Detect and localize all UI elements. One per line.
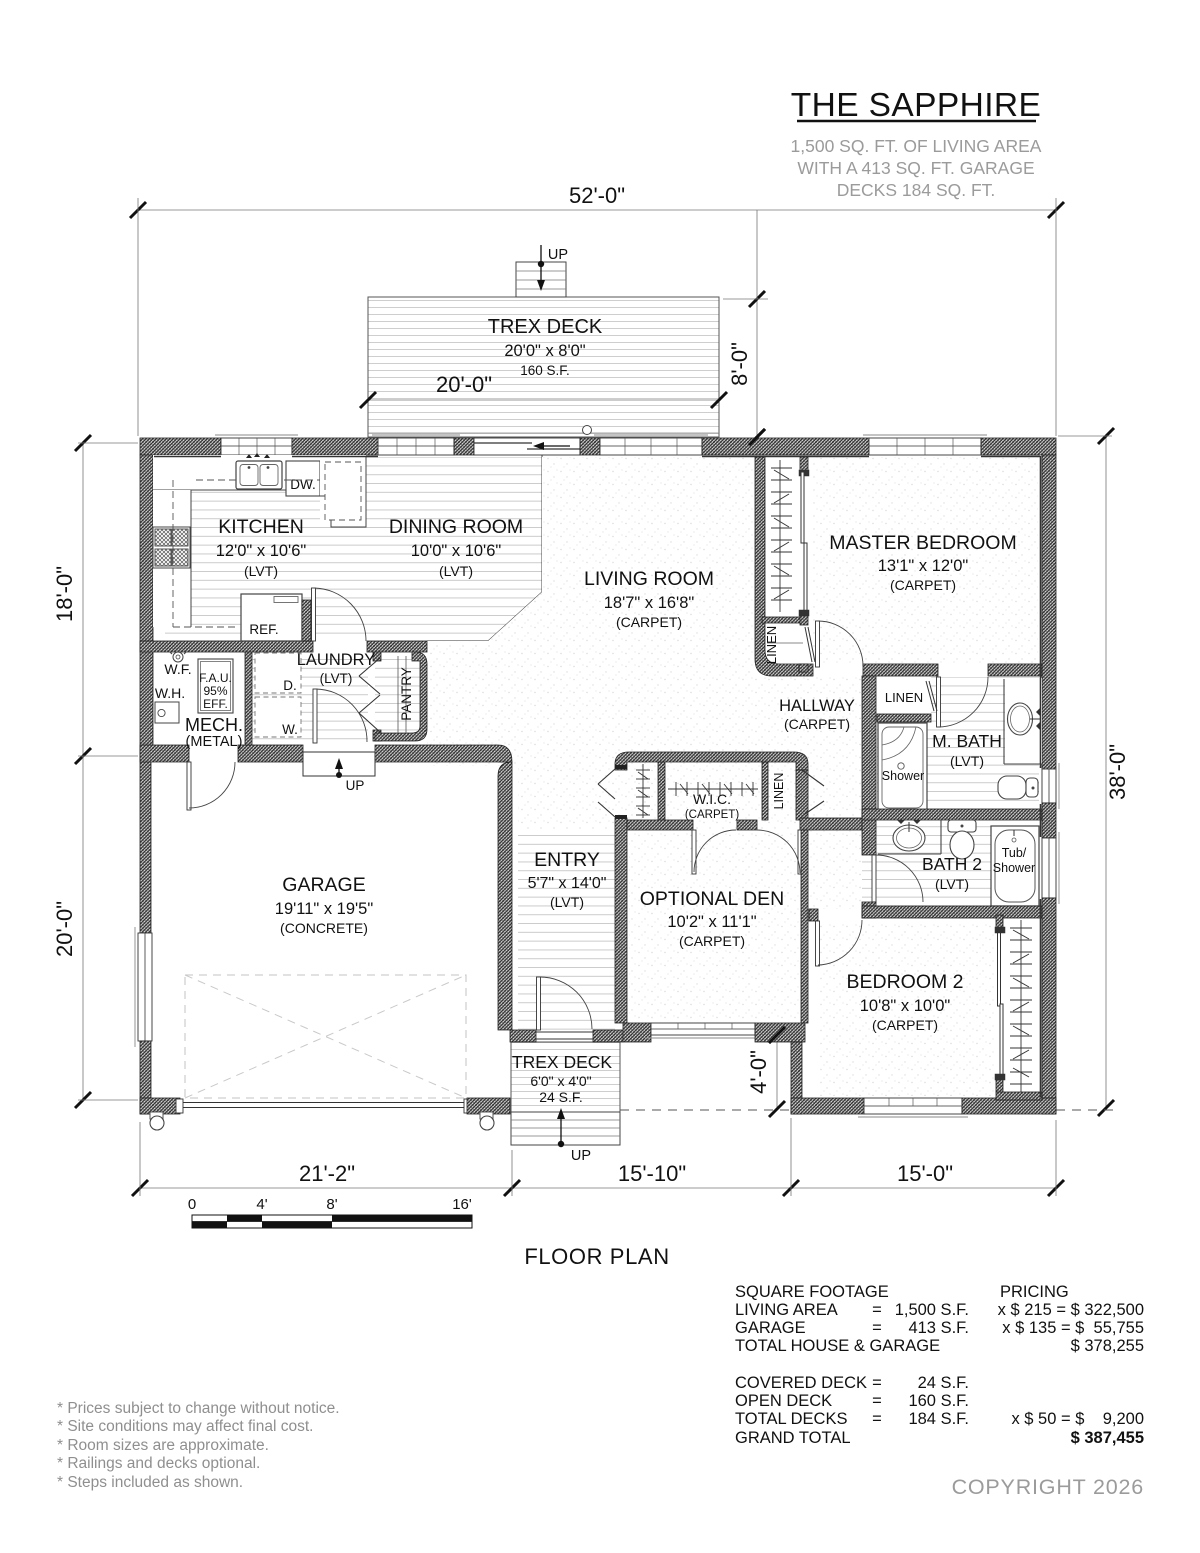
svg-text:8'-0": 8'-0"	[727, 342, 752, 386]
svg-text:10'0" x 10'6": 10'0" x 10'6"	[411, 542, 502, 560]
svg-text:LINEN: LINEN	[885, 690, 923, 705]
svg-text:SQUARE FOOTAGE: SQUARE FOOTAGE	[735, 1283, 889, 1301]
svg-text:20'-0": 20'-0"	[436, 372, 492, 397]
svg-text:OPTIONAL DEN: OPTIONAL DEN	[640, 888, 784, 910]
svg-text:15'-0": 15'-0"	[897, 1161, 953, 1186]
svg-text:W.H.: W.H.	[155, 685, 185, 701]
svg-text:ENTRY: ENTRY	[534, 849, 600, 871]
svg-text:WITH A 413 SQ. FT. GARAGE: WITH A 413 SQ. FT. GARAGE	[797, 158, 1034, 178]
svg-text:8': 8'	[326, 1196, 337, 1213]
svg-text:12'0" x 10'6": 12'0" x 10'6"	[216, 542, 307, 560]
svg-text:DW.: DW.	[290, 477, 316, 492]
svg-text:LAUNDRY: LAUNDRY	[297, 651, 376, 669]
svg-text:GARAGE: GARAGE	[735, 1319, 806, 1337]
svg-text:TOTAL DECKS: TOTAL DECKS	[735, 1410, 847, 1428]
svg-text:EFF.: EFF.	[203, 697, 228, 711]
svg-text:10'2" x 11'1": 10'2" x 11'1"	[667, 913, 756, 931]
svg-text:(LVT): (LVT)	[935, 876, 969, 892]
svg-text:10'8" x 10'0": 10'8" x 10'0"	[860, 997, 951, 1015]
svg-text:W.F.: W.F.	[164, 661, 191, 677]
svg-text:(CARPET): (CARPET)	[685, 809, 739, 821]
svg-text:HALLWAY: HALLWAY	[779, 697, 855, 715]
svg-text:$ 378,255: $ 378,255	[1071, 1337, 1144, 1355]
svg-text:1,500 SQ. FT. OF LIVING AREA: 1,500 SQ. FT. OF LIVING AREA	[791, 136, 1042, 156]
svg-text:=: =	[872, 1374, 882, 1392]
svg-text:* Site conditions may affect f: * Site conditions may affect final cost.	[57, 1418, 313, 1435]
svg-text:MECH.: MECH.	[185, 715, 243, 735]
svg-text:24 S.F.: 24 S.F.	[918, 1374, 969, 1392]
svg-text:18'-0": 18'-0"	[52, 566, 77, 622]
svg-text:MASTER BEDROOM: MASTER BEDROOM	[829, 532, 1016, 554]
svg-text:24 S.F.: 24 S.F.	[539, 1089, 583, 1105]
svg-text:DINING ROOM: DINING ROOM	[389, 516, 523, 538]
svg-text:18'7" x 16'8": 18'7" x 16'8"	[604, 594, 695, 612]
svg-text:(CARPET): (CARPET)	[616, 614, 682, 630]
svg-text:x $ 50 = $ 9,200: x $ 50 = $ 9,200	[1011, 1410, 1144, 1428]
svg-text:* Prices subject to change wit: * Prices subject to change without notic…	[57, 1400, 340, 1417]
svg-text:UP: UP	[571, 1148, 591, 1164]
svg-text:$ 387,455: $ 387,455	[1071, 1429, 1144, 1447]
svg-text:38'-0": 38'-0"	[1105, 744, 1130, 800]
svg-text:52'-0": 52'-0"	[569, 183, 625, 208]
svg-text:REF.: REF.	[249, 622, 278, 637]
svg-text:TREX DECK: TREX DECK	[512, 1052, 612, 1072]
svg-text:OPEN DECK: OPEN DECK	[735, 1392, 832, 1410]
svg-text:184 S.F.: 184 S.F.	[908, 1410, 969, 1428]
svg-text:F.A.U.: F.A.U.	[199, 671, 232, 685]
svg-text:(CARPET): (CARPET)	[784, 716, 850, 732]
svg-text:(CARPET): (CARPET)	[679, 933, 745, 949]
svg-text:(CARPET): (CARPET)	[890, 577, 956, 593]
svg-text:(LVT): (LVT)	[320, 671, 353, 686]
svg-text:LINEN: LINEN	[772, 773, 786, 810]
svg-text:5'7" x 14'0": 5'7" x 14'0"	[528, 875, 607, 892]
svg-text:(LVT): (LVT)	[244, 563, 278, 579]
svg-text:Tub/: Tub/	[1002, 846, 1027, 860]
svg-text:4': 4'	[256, 1196, 267, 1213]
svg-text:413 S.F.: 413 S.F.	[908, 1319, 969, 1337]
svg-text:PRICING: PRICING	[1000, 1283, 1069, 1301]
svg-text:PANTRY: PANTRY	[399, 667, 414, 721]
svg-text:LIVING ROOM: LIVING ROOM	[584, 568, 714, 590]
svg-text:Shower: Shower	[882, 769, 924, 783]
svg-text:20'0" x 8'0": 20'0" x 8'0"	[504, 342, 585, 360]
svg-text:160 S.F.: 160 S.F.	[908, 1392, 969, 1410]
svg-text:(METAL): (METAL)	[186, 734, 243, 750]
svg-text:W.: W.	[282, 722, 298, 737]
svg-text:(LVT): (LVT)	[550, 894, 584, 910]
svg-text:Shower: Shower	[993, 861, 1035, 875]
svg-text:1,500 S.F.: 1,500 S.F.	[895, 1301, 969, 1319]
svg-text:UP: UP	[548, 247, 568, 263]
svg-text:160 S.F.: 160 S.F.	[520, 363, 570, 378]
svg-text:* Railings and decks optional.: * Railings and decks optional.	[57, 1455, 260, 1472]
svg-text:* Steps included as shown.: * Steps included as shown.	[57, 1474, 243, 1491]
svg-text:BEDROOM 2: BEDROOM 2	[846, 971, 963, 993]
svg-text:(CONCRETE): (CONCRETE)	[280, 920, 368, 936]
svg-text:W.I.C.: W.I.C.	[693, 791, 731, 807]
svg-text:DECKS 184 SQ. FT.: DECKS 184 SQ. FT.	[837, 180, 996, 200]
svg-text:UP: UP	[346, 778, 365, 793]
svg-text:LINEN: LINEN	[764, 626, 779, 664]
svg-text:M. BATH: M. BATH	[932, 731, 1002, 751]
svg-text:=: =	[872, 1319, 882, 1337]
svg-text:95%: 95%	[203, 684, 227, 698]
svg-text:THE SAPPHIRE: THE SAPPHIRE	[791, 87, 1042, 124]
svg-text:x $ 135 = $ 55,755: x $ 135 = $ 55,755	[1002, 1319, 1144, 1337]
svg-text:=: =	[872, 1392, 882, 1410]
svg-text:x $ 215 = $ 322,500: x $ 215 = $ 322,500	[998, 1301, 1144, 1319]
svg-text:KITCHEN: KITCHEN	[218, 516, 304, 538]
svg-text:D.: D.	[283, 678, 297, 693]
svg-text:15'-10": 15'-10"	[618, 1161, 686, 1186]
svg-text:=: =	[872, 1301, 882, 1319]
svg-text:TOTAL HOUSE & GARAGE: TOTAL HOUSE & GARAGE	[735, 1337, 940, 1355]
svg-text:(LVT): (LVT)	[439, 563, 473, 579]
svg-text:COVERED DECK: COVERED DECK	[735, 1374, 867, 1392]
svg-text:4'-0": 4'-0"	[746, 1050, 771, 1094]
svg-text:(CARPET): (CARPET)	[872, 1017, 938, 1033]
svg-text:LIVING AREA: LIVING AREA	[735, 1301, 838, 1319]
svg-text:BATH 2: BATH 2	[922, 854, 982, 874]
svg-text:COPYRIGHT 2026: COPYRIGHT 2026	[952, 1475, 1144, 1499]
svg-text:20'-0": 20'-0"	[52, 901, 77, 957]
svg-text:(LVT): (LVT)	[950, 753, 984, 769]
svg-text:13'1" x 12'0": 13'1" x 12'0"	[878, 557, 969, 575]
svg-text:21'-2": 21'-2"	[299, 1161, 355, 1186]
svg-text:0: 0	[188, 1196, 196, 1213]
svg-text:=: =	[872, 1410, 882, 1428]
svg-text:GRAND TOTAL: GRAND TOTAL	[735, 1429, 851, 1447]
svg-text:FLOOR PLAN: FLOOR PLAN	[524, 1244, 669, 1269]
svg-text:6'0" x 4'0": 6'0" x 4'0"	[530, 1073, 591, 1089]
svg-text:TREX DECK: TREX DECK	[488, 316, 603, 338]
svg-text:16': 16'	[452, 1196, 472, 1213]
svg-text:* Room sizes are approximate.: * Room sizes are approximate.	[57, 1437, 269, 1454]
svg-text:GARAGE: GARAGE	[282, 874, 365, 896]
svg-text:19'11" x 19'5": 19'11" x 19'5"	[275, 900, 374, 918]
